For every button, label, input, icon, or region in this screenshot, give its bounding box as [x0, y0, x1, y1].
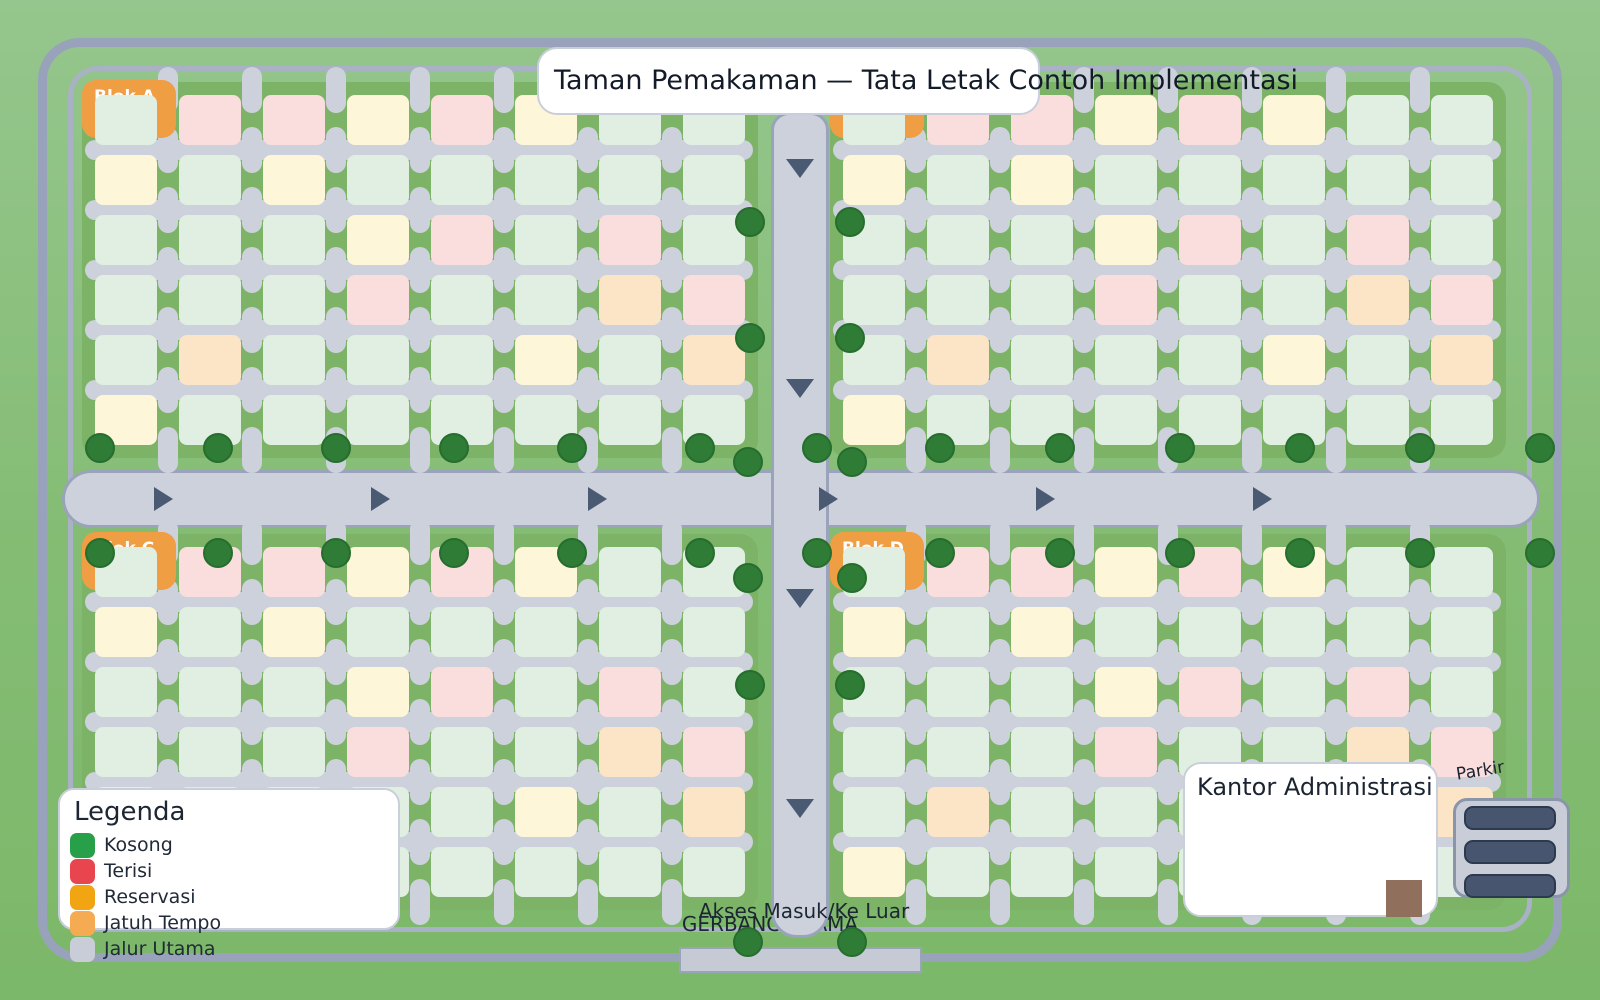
plot-cell — [95, 155, 157, 205]
plot-cell — [263, 727, 325, 777]
block-path — [494, 699, 514, 745]
plot-cell — [1011, 727, 1073, 777]
plot-cell — [515, 787, 577, 837]
block-path — [1074, 187, 1094, 233]
block-path — [1074, 127, 1094, 173]
plot-cell — [599, 215, 661, 265]
block-path — [1326, 427, 1346, 473]
plot-cell — [1347, 215, 1409, 265]
block-path — [1326, 67, 1346, 113]
block-path — [1074, 247, 1094, 293]
road-arrow-right-icon — [1253, 487, 1272, 511]
plot-cell — [515, 335, 577, 385]
block-path — [494, 579, 514, 625]
tree-icon — [802, 433, 832, 463]
plot-cell — [1431, 275, 1493, 325]
block-path — [326, 67, 346, 113]
plot-cell — [431, 667, 493, 717]
plot-cell — [599, 787, 661, 837]
block-path — [494, 67, 514, 113]
block-path — [1158, 247, 1178, 293]
legend-swatch-icon — [70, 937, 95, 962]
block-path — [1074, 639, 1094, 685]
block-path — [990, 427, 1010, 473]
legend-item-label: Kosong — [104, 834, 173, 856]
plot-cell — [347, 95, 409, 145]
plot-cell — [263, 275, 325, 325]
block-path — [1158, 367, 1178, 413]
tree-icon — [85, 538, 115, 568]
block-path — [578, 307, 598, 353]
block-path — [1242, 307, 1262, 353]
plot-cell — [1179, 335, 1241, 385]
tree-icon — [1525, 433, 1555, 463]
plot-cell — [431, 787, 493, 837]
plot-cell — [515, 215, 577, 265]
plot-cell — [1095, 727, 1157, 777]
parking-space — [1464, 840, 1556, 864]
plot-cell — [179, 275, 241, 325]
block-path — [410, 759, 430, 805]
tree-icon — [735, 207, 765, 237]
road-arrow-down-icon — [786, 159, 814, 178]
block-path — [906, 759, 926, 805]
block-path — [1158, 699, 1178, 745]
legend-swatch-icon — [70, 885, 95, 910]
plot-cell — [95, 607, 157, 657]
tree-icon — [733, 447, 763, 477]
block-path — [1074, 819, 1094, 865]
block-path — [662, 367, 682, 413]
plot-cell — [1011, 335, 1073, 385]
plot-cell — [179, 95, 241, 145]
block-path — [578, 639, 598, 685]
block-path — [326, 187, 346, 233]
tree-icon — [1405, 433, 1435, 463]
block-path — [1074, 699, 1094, 745]
tree-icon — [837, 927, 867, 957]
tree-icon — [837, 563, 867, 593]
road-arrow-down-icon — [786, 799, 814, 818]
block-path — [990, 127, 1010, 173]
tree-icon — [835, 323, 865, 353]
block-path — [990, 247, 1010, 293]
block-path — [662, 579, 682, 625]
plot-cell — [1263, 275, 1325, 325]
plot-cell — [179, 335, 241, 385]
plot-cell — [1095, 275, 1157, 325]
block-path — [662, 879, 682, 925]
plot-cell — [1431, 395, 1493, 445]
block-path — [1410, 127, 1430, 173]
tree-icon — [735, 670, 765, 700]
block-path — [1410, 639, 1430, 685]
tree-icon — [835, 670, 865, 700]
block-path — [990, 519, 1010, 565]
plot-cell — [95, 215, 157, 265]
plot-cell — [927, 335, 989, 385]
gate-bar — [679, 947, 922, 973]
plot-cell — [1347, 607, 1409, 657]
block-path — [662, 819, 682, 865]
legend-swatch-icon — [70, 833, 95, 858]
plot-cell — [1011, 787, 1073, 837]
legend-item-label: Reservasi — [104, 886, 196, 908]
block-path — [990, 639, 1010, 685]
block-path — [578, 579, 598, 625]
block-path — [494, 427, 514, 473]
block-path — [1326, 127, 1346, 173]
plot-cell — [927, 275, 989, 325]
road-arrow-down-icon — [786, 379, 814, 398]
plot-cell — [1095, 607, 1157, 657]
plot-cell — [431, 727, 493, 777]
block-path — [1326, 187, 1346, 233]
block-path — [906, 639, 926, 685]
plot-cell — [95, 667, 157, 717]
block-path — [662, 247, 682, 293]
block-path — [494, 247, 514, 293]
plot-cell — [843, 155, 905, 205]
plot-cell — [1431, 95, 1493, 145]
plot-cell — [1347, 395, 1409, 445]
plot-cell — [843, 275, 905, 325]
tree-icon — [321, 433, 351, 463]
road-arrow-right-icon — [588, 487, 607, 511]
legend-item-label: Terisi — [104, 860, 152, 882]
block-path — [662, 699, 682, 745]
block-path — [578, 367, 598, 413]
block-path — [990, 307, 1010, 353]
block-path — [1242, 127, 1262, 173]
road-arrow-down-icon — [786, 589, 814, 608]
plot-cell — [843, 607, 905, 657]
block-path — [1242, 187, 1262, 233]
plot-cell — [1347, 155, 1409, 205]
plot-cell — [1347, 95, 1409, 145]
block-path — [1158, 579, 1178, 625]
plot-cell — [263, 395, 325, 445]
road-arrow-right-icon — [819, 487, 838, 511]
tree-icon — [439, 433, 469, 463]
plot-cell — [515, 155, 577, 205]
block-path — [1326, 367, 1346, 413]
block-path — [1242, 699, 1262, 745]
tree-icon — [203, 433, 233, 463]
block-path — [1242, 579, 1262, 625]
plot-cell — [347, 215, 409, 265]
plot-cell — [683, 667, 745, 717]
block-path — [326, 367, 346, 413]
block-path — [578, 187, 598, 233]
plot-cell — [599, 727, 661, 777]
plot-cell — [683, 275, 745, 325]
block-path — [1242, 247, 1262, 293]
block-path — [494, 127, 514, 173]
block-path — [990, 879, 1010, 925]
plot-cell — [1011, 215, 1073, 265]
block-path — [326, 127, 346, 173]
plot-cell — [431, 275, 493, 325]
plot-cell — [927, 155, 989, 205]
block-path — [410, 639, 430, 685]
block-path — [242, 579, 262, 625]
block-path — [410, 519, 430, 565]
plot-cell — [599, 847, 661, 897]
plot-cell — [431, 155, 493, 205]
plot-cell — [515, 727, 577, 777]
plot-cell — [599, 155, 661, 205]
block-path — [242, 699, 262, 745]
block-path — [1410, 307, 1430, 353]
block-path — [990, 187, 1010, 233]
block-path — [242, 187, 262, 233]
block-path — [1158, 639, 1178, 685]
plot-cell — [1011, 847, 1073, 897]
plot-cell — [927, 787, 989, 837]
block-path — [662, 307, 682, 353]
plot-cell — [599, 395, 661, 445]
plot-cell — [95, 335, 157, 385]
block-path — [242, 519, 262, 565]
plot-cell — [515, 275, 577, 325]
block-path — [906, 699, 926, 745]
tree-icon — [1285, 538, 1315, 568]
block-path — [1326, 307, 1346, 353]
plot-cell — [1347, 547, 1409, 597]
plot-cell — [1431, 547, 1493, 597]
block-path — [1074, 879, 1094, 925]
block-path — [662, 187, 682, 233]
plot-cell — [431, 335, 493, 385]
plot-cell — [1431, 215, 1493, 265]
block-path — [410, 819, 430, 865]
plot-cell — [179, 727, 241, 777]
block-path — [578, 699, 598, 745]
block-path — [1410, 699, 1430, 745]
admin-office-door — [1386, 880, 1422, 917]
plot-cell — [1179, 607, 1241, 657]
block-path — [990, 819, 1010, 865]
block-path — [494, 519, 514, 565]
block-path — [242, 427, 262, 473]
block-path — [242, 367, 262, 413]
tree-icon — [733, 927, 763, 957]
block-path — [1410, 579, 1430, 625]
block-path — [1410, 367, 1430, 413]
plot-cell — [599, 275, 661, 325]
tree-icon — [321, 538, 351, 568]
plot-cell — [515, 667, 577, 717]
block-path — [326, 579, 346, 625]
parking-space — [1464, 874, 1556, 898]
plot-cell — [431, 847, 493, 897]
plot-cell — [263, 607, 325, 657]
plot-cell — [1347, 275, 1409, 325]
plot-cell — [347, 727, 409, 777]
plot-cell — [1095, 547, 1157, 597]
block-path — [1410, 67, 1430, 113]
plot-cell — [347, 155, 409, 205]
block-path — [1242, 519, 1262, 565]
plot-cell — [347, 547, 409, 597]
block-path — [1410, 187, 1430, 233]
plot-cell — [347, 667, 409, 717]
plot-cell — [1431, 335, 1493, 385]
plot-cell — [1011, 275, 1073, 325]
tree-icon — [1165, 538, 1195, 568]
plot-cell — [347, 275, 409, 325]
block-path — [662, 519, 682, 565]
block-path — [990, 699, 1010, 745]
block-path — [158, 307, 178, 353]
plot-cell — [1179, 275, 1241, 325]
plot-cell — [1263, 667, 1325, 717]
plot-cell — [927, 727, 989, 777]
tree-icon — [925, 538, 955, 568]
tree-icon — [685, 538, 715, 568]
block-path — [158, 639, 178, 685]
tree-icon — [1525, 538, 1555, 568]
tree-icon — [439, 538, 469, 568]
block-path — [242, 247, 262, 293]
block-path — [1242, 427, 1262, 473]
plot-cell — [263, 667, 325, 717]
block-path — [410, 247, 430, 293]
plot-cell — [1095, 155, 1157, 205]
tree-icon — [837, 447, 867, 477]
block-path — [662, 127, 682, 173]
plot-cell — [263, 155, 325, 205]
plot-cell — [263, 335, 325, 385]
plot-cell — [599, 547, 661, 597]
block-path — [242, 307, 262, 353]
block-path — [1158, 127, 1178, 173]
block-path — [906, 307, 926, 353]
block-path — [410, 187, 430, 233]
gate-access-label: Akses Masuk/Ke Luar — [699, 899, 909, 923]
block-path — [494, 307, 514, 353]
block-path — [578, 879, 598, 925]
plot-cell — [1095, 787, 1157, 837]
block-path — [158, 699, 178, 745]
block-path — [990, 579, 1010, 625]
block-path — [1074, 367, 1094, 413]
plot-cell — [599, 667, 661, 717]
tree-icon — [1285, 433, 1315, 463]
block-path — [494, 879, 514, 925]
block-path — [326, 247, 346, 293]
plot-cell — [515, 607, 577, 657]
block-path — [410, 699, 430, 745]
plot-cell — [1347, 335, 1409, 385]
block-path — [494, 187, 514, 233]
block-path — [662, 759, 682, 805]
block-path — [242, 67, 262, 113]
block-path — [1158, 187, 1178, 233]
plot-cell — [1431, 155, 1493, 205]
block-path — [578, 247, 598, 293]
plot-cell — [431, 95, 493, 145]
block-path — [410, 127, 430, 173]
block-path — [494, 759, 514, 805]
tree-icon — [1405, 538, 1435, 568]
tree-icon — [203, 538, 233, 568]
road-arrow-right-icon — [154, 487, 173, 511]
plot-cell — [1095, 395, 1157, 445]
plot-cell — [683, 607, 745, 657]
plot-cell — [1095, 215, 1157, 265]
block-path — [906, 247, 926, 293]
block-path — [1158, 879, 1178, 925]
plot-cell — [1431, 667, 1493, 717]
block-path — [1074, 427, 1094, 473]
cemetery-map: GERBANG UTAMA Blok ABlok BBlok CBlok D A… — [0, 0, 1600, 1000]
block-path — [1158, 307, 1178, 353]
plot-cell — [927, 847, 989, 897]
block-path — [494, 819, 514, 865]
block-path — [906, 819, 926, 865]
tree-icon — [735, 323, 765, 353]
legend-item-label: Jatuh Tempo — [104, 912, 221, 934]
block-path — [410, 427, 430, 473]
block-path — [1074, 759, 1094, 805]
block-path — [1326, 247, 1346, 293]
block-path — [990, 367, 1010, 413]
plot-cell — [843, 727, 905, 777]
tree-icon — [835, 207, 865, 237]
block-path — [1326, 519, 1346, 565]
plot-cell — [1431, 607, 1493, 657]
block-path — [578, 819, 598, 865]
tree-icon — [557, 433, 587, 463]
block-path — [662, 639, 682, 685]
parking-space — [1464, 806, 1556, 830]
road-arrow-right-icon — [371, 487, 390, 511]
block-path — [662, 427, 682, 473]
plot-cell — [263, 95, 325, 145]
tree-icon — [685, 433, 715, 463]
plot-cell — [683, 155, 745, 205]
block-path — [158, 187, 178, 233]
plot-cell — [179, 607, 241, 657]
block-path — [906, 187, 926, 233]
block-path — [326, 639, 346, 685]
block-path — [158, 367, 178, 413]
plot-cell — [179, 667, 241, 717]
block-path — [1242, 639, 1262, 685]
tree-icon — [733, 563, 763, 593]
block-path — [1158, 819, 1178, 865]
block-path — [410, 307, 430, 353]
plot-cell — [599, 335, 661, 385]
plot-cell — [1179, 155, 1241, 205]
plot-cell — [1347, 667, 1409, 717]
plot-cell — [843, 847, 905, 897]
page-title: Taman Pemakaman — Tata Letak Contoh Impl… — [554, 48, 1298, 114]
block-path — [326, 307, 346, 353]
plot-cell — [683, 787, 745, 837]
tree-icon — [1045, 538, 1075, 568]
legend-item-label: Jalur Utama — [104, 938, 216, 960]
plot-cell — [95, 727, 157, 777]
plot-cell — [95, 275, 157, 325]
plot-cell — [1179, 215, 1241, 265]
block-path — [410, 67, 430, 113]
block-path — [1242, 367, 1262, 413]
plot-cell — [599, 607, 661, 657]
plot-cell — [431, 215, 493, 265]
